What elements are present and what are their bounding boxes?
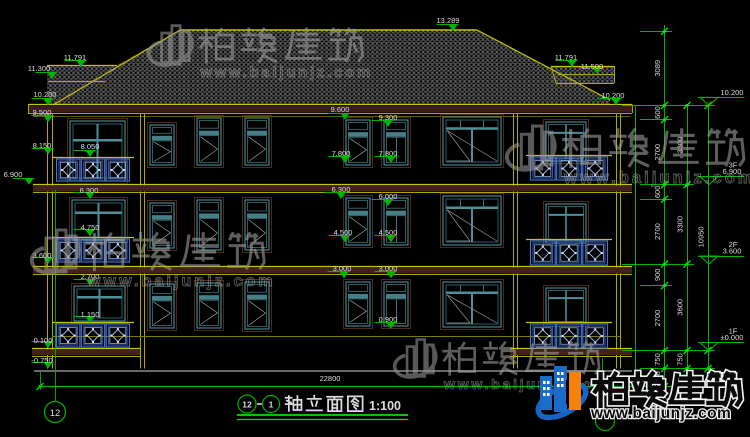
- svg-text:6.000: 6.000: [379, 192, 398, 201]
- svg-text:-0.750: -0.750: [31, 356, 52, 365]
- svg-text:3.600: 3.600: [723, 247, 742, 256]
- svg-text:11.791: 11.791: [555, 53, 577, 62]
- svg-text:8.150: 8.150: [33, 141, 52, 150]
- svg-text:www.baijunjz.com: www.baijunjz.com: [563, 169, 750, 187]
- svg-text:1:100: 1:100: [369, 399, 401, 413]
- svg-text:8.050: 8.050: [81, 142, 100, 151]
- svg-text:www.baijunjz.com: www.baijunjz.com: [590, 405, 731, 422]
- svg-text:11.300: 11.300: [28, 64, 50, 73]
- svg-text:10950: 10950: [697, 227, 706, 248]
- svg-text:4.500: 4.500: [334, 228, 353, 237]
- svg-text:6.300: 6.300: [80, 186, 99, 195]
- svg-text:10.200: 10.200: [34, 90, 57, 99]
- svg-text:9.300: 9.300: [379, 113, 398, 122]
- svg-text:600: 600: [653, 106, 662, 119]
- svg-text:±0.000: ±0.000: [721, 333, 744, 342]
- svg-text:3.000: 3.000: [379, 264, 398, 273]
- svg-text:2700: 2700: [653, 310, 662, 327]
- svg-text:6.900: 6.900: [4, 170, 23, 179]
- svg-text:0.900: 0.900: [379, 315, 398, 324]
- svg-text:1.150: 1.150: [81, 310, 100, 319]
- svg-text:3.000: 3.000: [333, 264, 352, 273]
- svg-text:7.800: 7.800: [332, 149, 351, 158]
- svg-text:600: 600: [653, 186, 662, 199]
- svg-text:13.289: 13.289: [437, 16, 460, 25]
- svg-text:9.500: 9.500: [33, 108, 52, 117]
- svg-text:10.200: 10.200: [721, 88, 744, 97]
- svg-text:7.800: 7.800: [379, 149, 398, 158]
- svg-text:12: 12: [242, 400, 252, 410]
- svg-text:22800: 22800: [320, 374, 341, 383]
- svg-text:3600: 3600: [676, 299, 685, 316]
- svg-text:12: 12: [50, 408, 61, 419]
- svg-text:750: 750: [653, 353, 662, 366]
- svg-text:6.300: 6.300: [332, 185, 351, 194]
- svg-text:0.100: 0.100: [34, 336, 53, 345]
- svg-text:www.baijunjz.com: www.baijunjz.com: [87, 273, 276, 290]
- svg-text:1: 1: [269, 400, 274, 410]
- svg-text:4.750: 4.750: [81, 223, 100, 232]
- svg-text:750: 750: [676, 353, 685, 366]
- svg-text:11.791: 11.791: [64, 53, 86, 62]
- svg-text:3089: 3089: [653, 60, 662, 77]
- svg-text:www.baijunjz.com: www.baijunjz.com: [199, 65, 373, 81]
- svg-text:2700: 2700: [653, 223, 662, 240]
- svg-text:11.500: 11.500: [581, 62, 603, 71]
- svg-text:3300: 3300: [676, 216, 685, 233]
- svg-text:4.500: 4.500: [379, 228, 398, 237]
- svg-text:10.200: 10.200: [602, 91, 625, 100]
- svg-text:9.600: 9.600: [331, 105, 350, 114]
- svg-text:900: 900: [653, 269, 662, 282]
